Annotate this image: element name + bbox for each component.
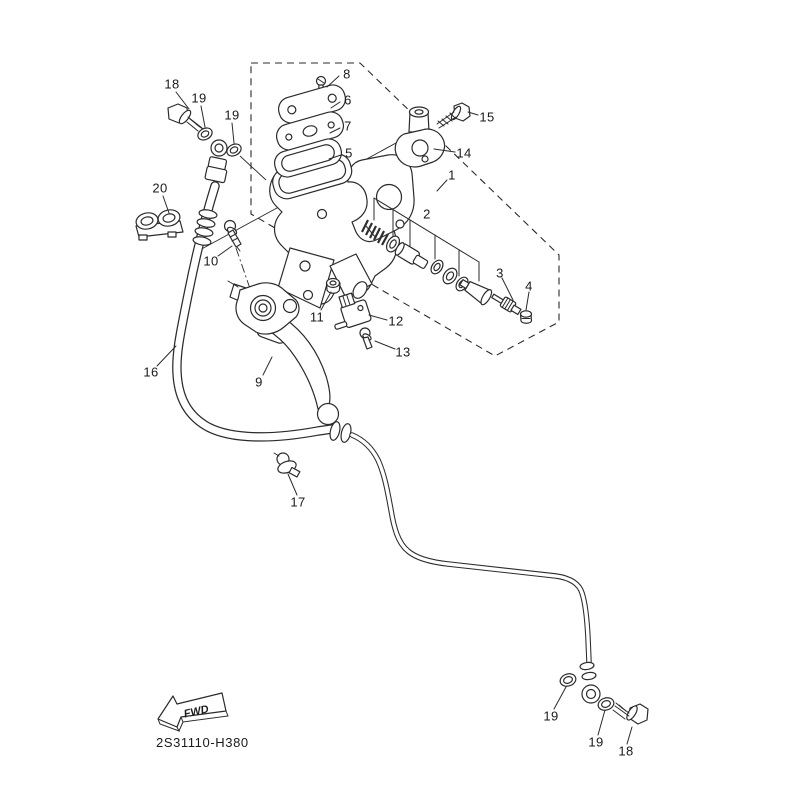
hose-upper-crimp (205, 156, 227, 182)
bracket-bolt-15 (437, 103, 470, 128)
callout-17-20: 17 (290, 495, 305, 510)
callout-15-7: 15 (479, 110, 494, 125)
callout-19-21: 19 (543, 709, 558, 724)
callout-2-11: 2 (423, 207, 431, 222)
callout-5-6: 5 (345, 146, 353, 161)
hose-lower-fitting (580, 662, 597, 681)
callout-20-10: 20 (152, 181, 167, 196)
bracket-holder-14 (395, 107, 444, 167)
washer-top-19a (196, 126, 214, 143)
callout-10-12: 10 (203, 254, 218, 269)
diagram-line-art: FWD (0, 0, 800, 800)
callout-4-14: 4 (525, 279, 533, 294)
callout-9-19: 9 (255, 375, 263, 390)
kit-piston (394, 241, 430, 271)
callout-18-0: 18 (164, 77, 179, 92)
parts-diagram-canvas: FWD 181919867515141202103411121316917191… (0, 0, 800, 800)
union-bolt-top-18 (168, 104, 204, 131)
callout-3-13: 3 (496, 266, 504, 281)
switch-screw-13 (360, 328, 372, 349)
callout-13-17: 13 (395, 345, 410, 360)
rod-cap-4 (521, 311, 532, 323)
callout-19-1: 19 (191, 91, 206, 106)
part-code: 2S31110-H380 (156, 735, 249, 750)
callout-19-22: 19 (588, 735, 603, 750)
clutch-switch-12 (327, 290, 372, 332)
fwd-arrow: FWD (158, 693, 228, 731)
pivot-nut-11 (327, 279, 341, 294)
callout-7-5: 7 (344, 119, 352, 134)
callout-1-9: 1 (448, 168, 456, 183)
hose-upper-banjo-eye (211, 140, 227, 156)
callout-11-15: 11 (310, 310, 324, 325)
callout-19-2: 19 (224, 108, 239, 123)
union-bolt-bottom-18 (613, 703, 648, 724)
bolt-threads (187, 117, 204, 131)
kit-ring-1 (429, 258, 446, 276)
hose-grommet-17 (274, 453, 300, 477)
washer-bottom-19c (559, 672, 578, 688)
callout-16-18: 16 (143, 365, 158, 380)
hose-clamp-20 (135, 208, 183, 240)
callout-12-16: 12 (388, 314, 403, 329)
push-rod-3 (490, 291, 522, 316)
callout-6-4: 6 (344, 93, 352, 108)
callout-8-3: 8 (343, 67, 351, 82)
pivot-screw-10 (225, 221, 242, 252)
callout-14-8: 14 (456, 146, 471, 161)
hose-lower-banjo-eye (582, 685, 600, 703)
callout-18-23: 18 (618, 744, 633, 759)
